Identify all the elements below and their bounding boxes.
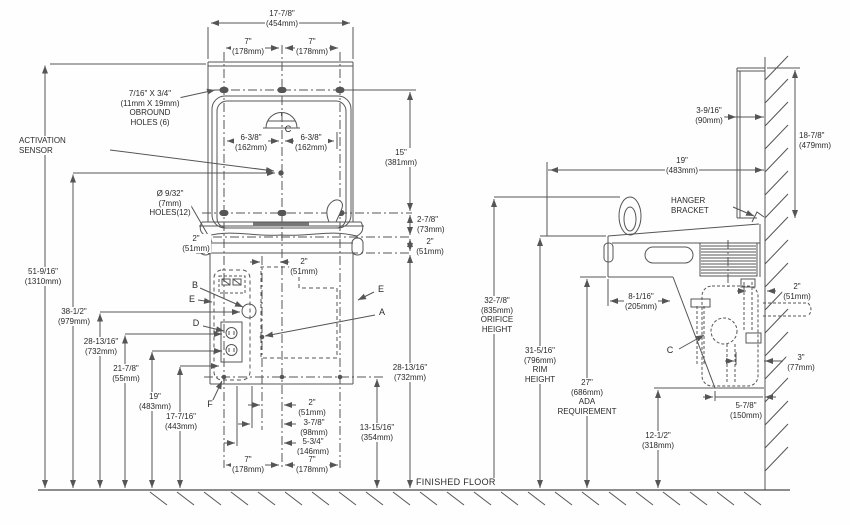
dim-28136-right: 28-13/16"(732mm) [392, 363, 428, 382]
dim-width-total: 17-7/8"(454mm) [265, 9, 299, 28]
side-view [494, 56, 811, 490]
hanger-bracket [752, 212, 764, 222]
dim-2-left: 2"(51mm) [181, 234, 211, 253]
dim-2-right: 2"(51mm) [415, 237, 445, 256]
dim-2178: 21-7/8"(55mm) [111, 364, 141, 383]
callout-e-right: E [376, 285, 386, 295]
dim-1212: 12-1/2"(318mm) [641, 431, 675, 450]
callout-c: C [665, 346, 676, 356]
dim-7-top-left: 7"(178mm) [231, 37, 265, 56]
dim-278: 2-7/8"(73mm) [416, 215, 446, 234]
dim-131516: 13-15/16"(354mm) [359, 423, 395, 442]
dim-orifice-height: 32-7/8"(835mm)ORIFICEHEIGHT [480, 296, 514, 334]
dim-3916: 3-9/16"(90mm) [694, 106, 724, 125]
dim-7-bottom-left: 7"(178mm) [231, 455, 265, 474]
dim-2-bottom: 2"(51mm) [297, 398, 327, 417]
dim-28136-left: 28-13/16"(732mm) [83, 337, 119, 356]
dim-8116: 8-1/16"(205mm) [624, 292, 658, 311]
dim-7-bottom-right: 7"(178mm) [295, 455, 329, 474]
water-inlet-circle [242, 304, 256, 318]
floor-hatch [150, 492, 761, 505]
dim-3812: 38-1/2"(979mm) [57, 307, 91, 326]
dim-578: 5-7/8"(150mm) [729, 401, 763, 420]
callout-b: B [190, 281, 200, 291]
dim-1878: 18-7/8"(479mm) [798, 131, 832, 150]
bubbler-side [619, 197, 641, 235]
note-activation-sensor: ACTIVATIONSENSOR [18, 136, 67, 155]
dim-378: 3-7/8"(98mm) [299, 418, 329, 437]
dim-534: 5-3/4"(146mm) [296, 437, 330, 456]
dim-rim-height: 31-5/16"(796mm)RIMHEIGHT [523, 346, 557, 384]
dim-15: 15"(381mm) [384, 148, 418, 167]
dim-7-top-right: 7"(178mm) [295, 37, 329, 56]
dim-638-left: 6-3/8"(162mm) [234, 133, 268, 152]
dim-19-side: 19"(483mm) [665, 156, 699, 175]
dim-19-front: 19"(483mm) [138, 392, 172, 411]
dim-638-right: 6-3/8"(162mm) [294, 133, 328, 152]
wall-hatch [765, 56, 788, 471]
dim-2-side: 2"(51mm) [782, 282, 812, 301]
callout-e-left: E [187, 295, 197, 305]
finished-floor-label: FINISHED FLOOR [415, 478, 497, 488]
note-obround-holes: 7/16" X 3/4"(11mm X 19mm)OBROUNDHOLES (6… [120, 89, 181, 127]
dim-ada-requirement: 27"(686mm)ADAREQUIREMENT [556, 378, 617, 416]
activation-sensor-dot [279, 171, 283, 175]
front-height-dims [45, 66, 240, 489]
front-view [45, 23, 416, 488]
callout-f: F [205, 400, 215, 410]
callout-d: D [191, 319, 202, 329]
centerline-mark: C [283, 125, 294, 135]
dim-5196: 51-9/16"(1310mm) [24, 267, 62, 286]
note-hanger-bracket: HANGERBRACKET [670, 196, 710, 215]
dim-3-side: 3"(77mm) [786, 353, 816, 372]
dim-17716: 17-7/16"(443mm) [164, 412, 198, 431]
callout-a: A [377, 308, 387, 318]
technical-drawing-page: 17-7/8"(454mm) 7"(178mm) 7"(178mm) 7/16"… [0, 0, 850, 525]
note-round-holes: Ø 9/32"(7mm)HOLES(12) [148, 189, 191, 218]
dim-2-cabinet: 2"(51mm) [289, 257, 319, 276]
drawing-linework [0, 0, 850, 525]
